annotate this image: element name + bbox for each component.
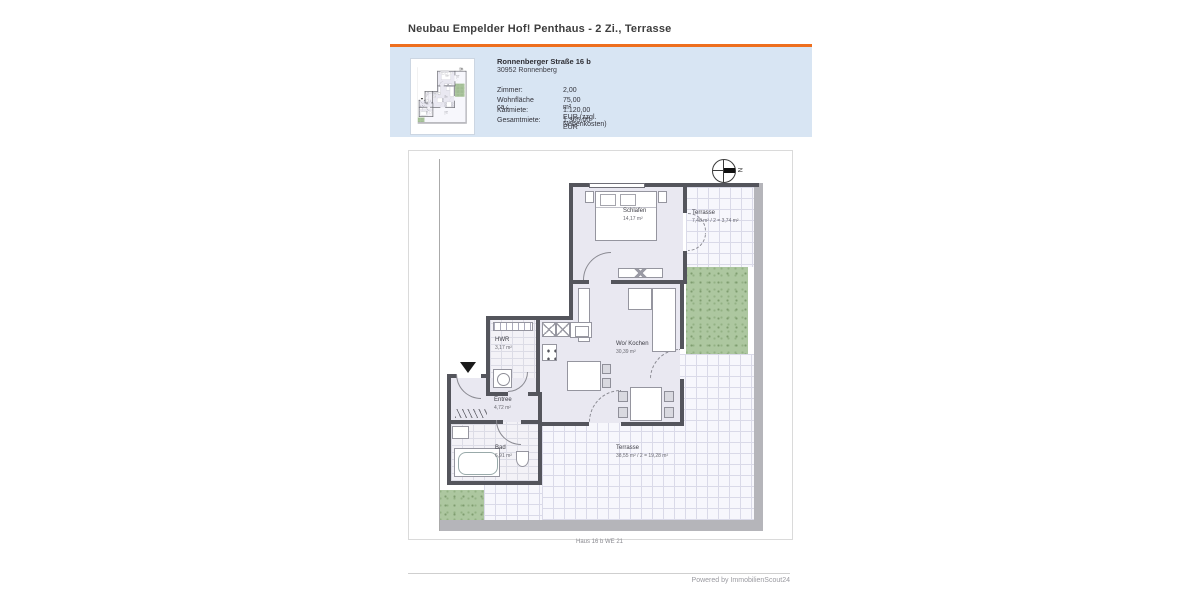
chair <box>602 364 611 374</box>
room-label-wohnen: Wo/ Kochen 30,39 m² <box>616 341 649 355</box>
room-label-terrasse-upper: Terrasse 7,48 m² / 2 = 3,74 m² <box>692 210 739 224</box>
wall-segment <box>569 183 573 320</box>
garden-patch-bottom <box>440 490 484 520</box>
wall-segment <box>447 481 542 485</box>
compass-needle-icon <box>724 168 735 173</box>
kitchen-cupboard <box>542 322 556 337</box>
wall-segment <box>611 280 687 284</box>
wall-segment <box>683 251 687 284</box>
shelf <box>493 322 533 331</box>
info-label: Kaltmiete: <box>497 107 528 114</box>
nightstand <box>658 191 667 203</box>
wall-segment <box>683 183 687 213</box>
wall-segment <box>538 392 542 485</box>
wall-segment <box>536 316 540 396</box>
property-info-box: N Schlafen 14,17 m² Terrasse 7,48 m² / <box>390 47 812 137</box>
sink <box>575 326 589 337</box>
sofa-corner <box>628 288 652 310</box>
radiator <box>455 409 487 418</box>
footer-divider <box>408 573 790 574</box>
compass: N <box>712 159 746 183</box>
wall-segment <box>542 422 589 426</box>
stove <box>542 344 557 361</box>
wall-segment <box>680 379 684 426</box>
room-label-entree: Entree 4,72 m² <box>494 397 512 411</box>
chair <box>602 378 611 388</box>
footer-branding: Powered by ImmobilienScout24 <box>408 577 790 584</box>
kitchen-table <box>567 361 601 391</box>
room-label-bad: Bad 6,91 m² <box>495 445 512 459</box>
terrace-edge-right <box>754 183 763 531</box>
bathtub <box>454 448 500 477</box>
window <box>589 183 645 188</box>
washbasin <box>452 426 469 439</box>
floorplan-drawing: N Schlafen 14,17 m² Terrasse 7,48 m² / <box>408 150 793 540</box>
info-label: Gesamtmiete: <box>497 117 541 124</box>
sofa <box>652 288 676 352</box>
info-label: Zimmer: <box>497 87 523 94</box>
address-city: 30952 Ronnenberg <box>497 67 557 74</box>
room-label-schlafen: Schlafen 14,17 m² <box>623 208 646 222</box>
terrace-edge-bottom <box>440 520 754 531</box>
property-boundary-line <box>439 159 440 531</box>
wall-segment <box>680 284 684 349</box>
info-value: 2,00 <box>563 87 577 94</box>
entrance-arrow <box>460 362 476 373</box>
pillow <box>600 194 616 206</box>
expose-page: { "page": { "title": "Neubau Empelder Ho… <box>0 0 1200 600</box>
bathtub-inner <box>458 452 498 475</box>
washer-drum <box>497 373 510 386</box>
chair <box>664 391 674 402</box>
wall-segment <box>486 316 490 396</box>
sideboard <box>618 268 663 278</box>
dining-table <box>630 387 662 421</box>
address-street: Ronnenberger Straße 16 b <box>497 57 591 66</box>
wall-segment <box>447 374 451 485</box>
toilet <box>516 451 529 467</box>
page-title: Neubau Empelder Hof! Penthaus - 2 Zi., T… <box>408 23 671 35</box>
room-label-hwr: HWR 3,17 m² <box>495 337 512 351</box>
kitchen-sink-counter <box>570 322 592 338</box>
wall-segment <box>486 316 573 320</box>
garden-patch-right <box>686 267 748 354</box>
floorplan-caption: Haus 16 b WE 21 <box>408 539 791 545</box>
kitchen-cupboard <box>556 322 570 337</box>
room-label-terrasse-lower: Terrasse 38,55 m² / 2 = 19,28 m² <box>616 445 668 459</box>
chair <box>664 407 674 418</box>
chair <box>618 391 628 402</box>
wall-segment <box>621 422 684 426</box>
terrace-lower-tiles <box>484 482 542 520</box>
pillow <box>620 194 636 206</box>
wall-segment <box>447 420 503 424</box>
floorplan-thumbnail: N Schlafen 14,17 m² Terrasse 7,48 m² / <box>410 58 475 135</box>
info-value: 1.365,00 EUR <box>563 117 590 131</box>
washing-machine <box>493 369 512 388</box>
chair <box>618 407 628 418</box>
nightstand <box>585 191 594 203</box>
compass-north-label: N <box>736 168 742 172</box>
